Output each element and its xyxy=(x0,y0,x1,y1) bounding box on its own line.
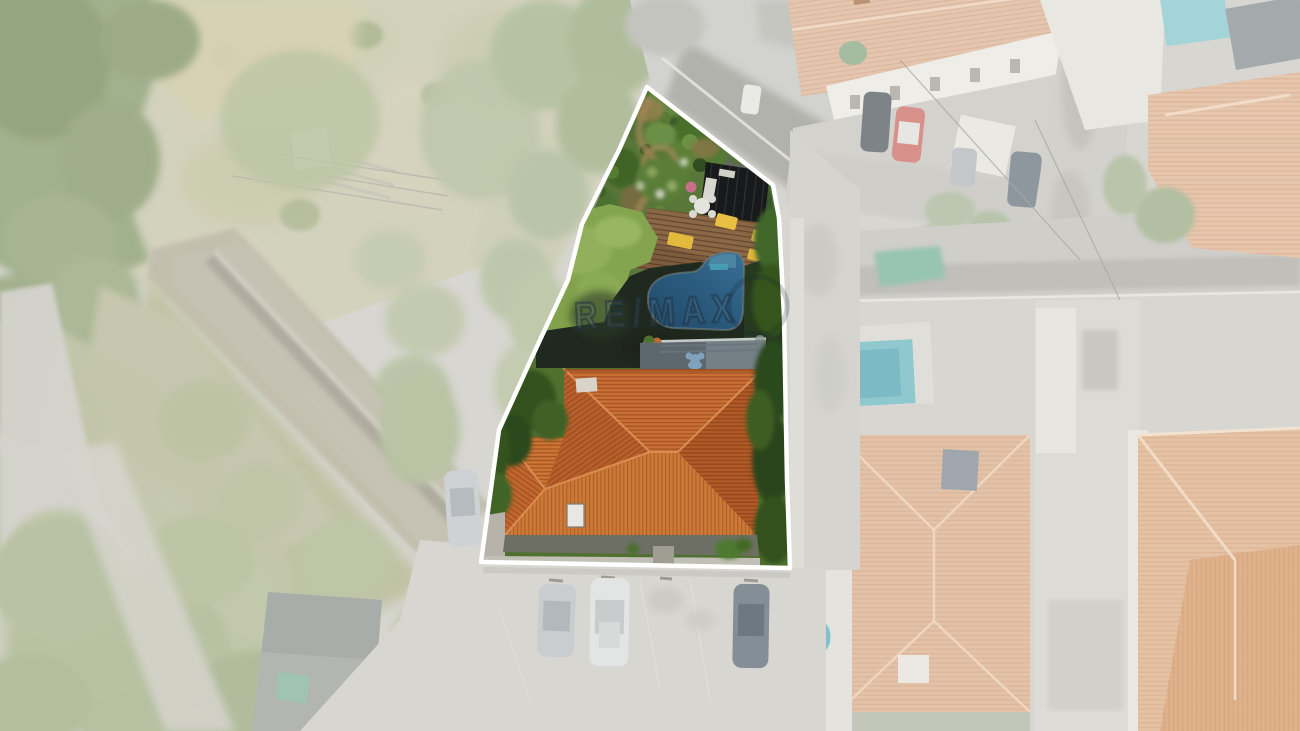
svg-text:RE/MAX: RE/MAX xyxy=(574,288,741,338)
